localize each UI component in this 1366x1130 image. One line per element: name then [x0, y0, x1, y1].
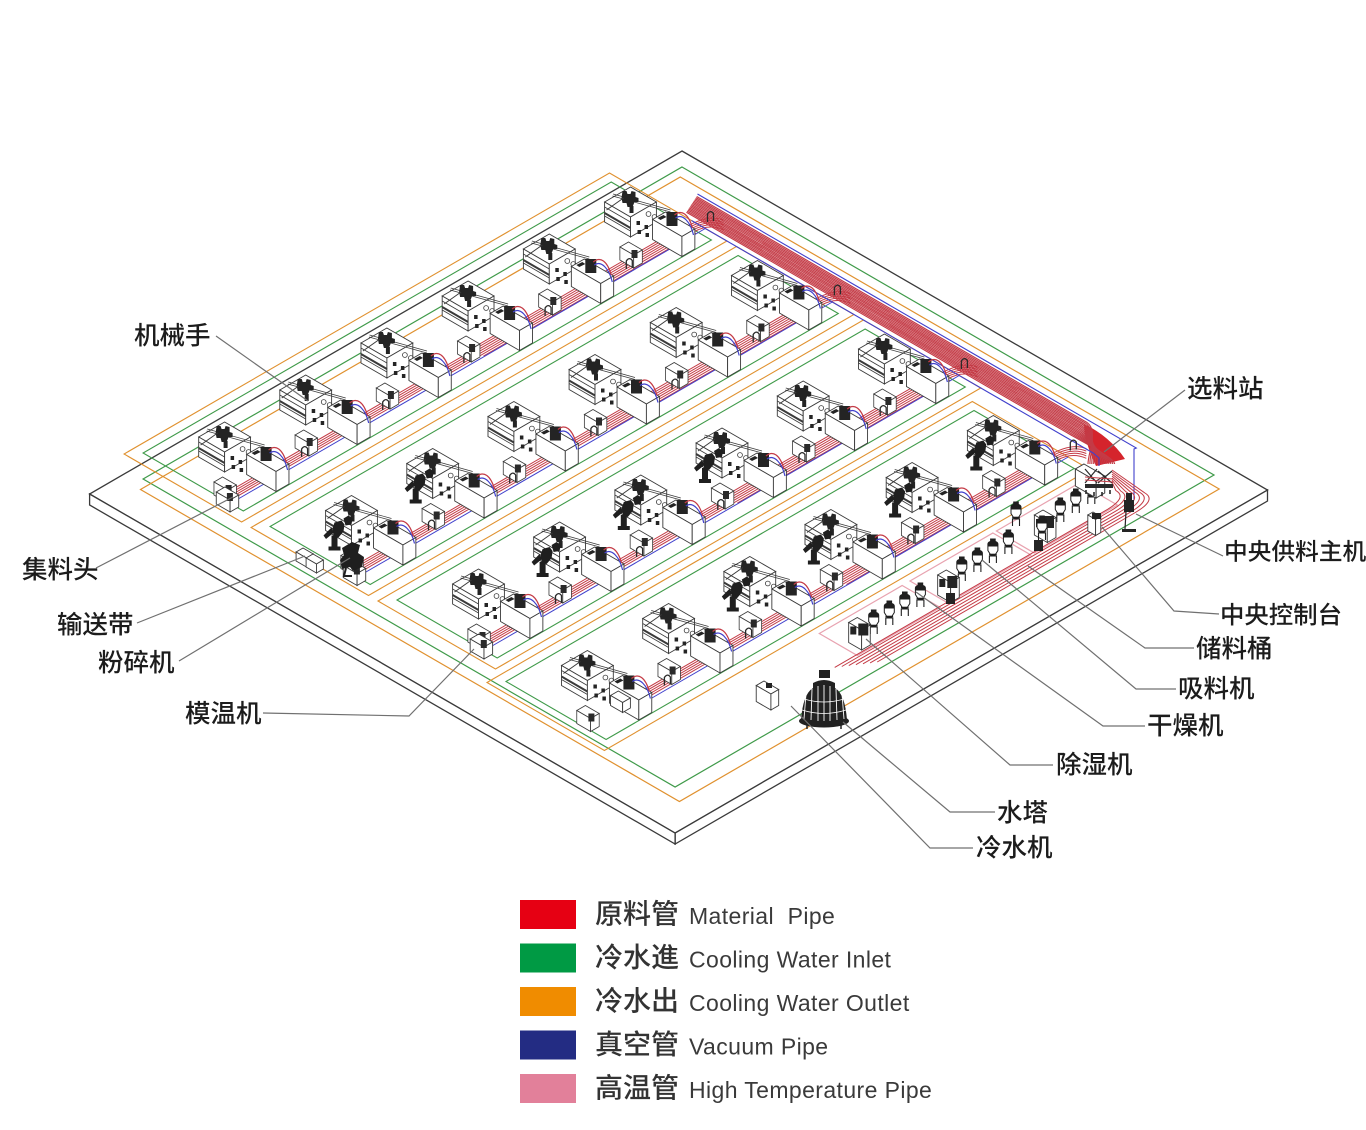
svg-text:Vacuum Pipe: Vacuum Pipe	[689, 1034, 829, 1060]
svg-text:Cooling Water Outlet: Cooling Water Outlet	[689, 990, 910, 1016]
svg-text:High Temperature Pipe: High Temperature Pipe	[689, 1077, 932, 1103]
svg-text:Cooling Water Inlet: Cooling Water Inlet	[689, 947, 892, 973]
svg-text:Material Pipe: Material Pipe	[689, 903, 835, 929]
